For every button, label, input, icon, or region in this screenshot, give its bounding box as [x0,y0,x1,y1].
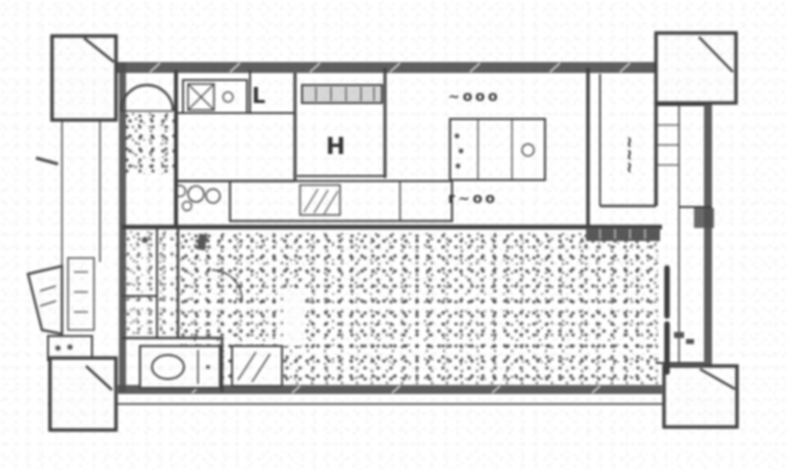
entry-glyph-label: L [252,84,265,108]
closet-shelf [302,85,382,103]
kitchen-label-bottom: r~oo [448,190,498,206]
toilet-fixture [140,346,220,388]
right-room-vertical-label: ~~~ [620,136,638,174]
washer-box [183,80,247,113]
floor-plan-scan: L H ~ooo r~oo ~~~ [0,0,787,470]
pillar-bottom-right [664,366,737,427]
kitchen-island [450,119,545,180]
living-room-fixtures [232,288,303,386]
pillar-bottom-left [50,358,116,430]
pillar-top-right [656,33,736,103]
kitchen-label-top: ~ooo [448,88,501,104]
interior-walls-top [176,68,600,228]
entry-door-arc [121,85,173,111]
pillar-top-left [52,36,116,120]
kitchen-counter [175,181,453,221]
bath-glyph-label: H [326,133,345,159]
floor-plan-linework: L H ~ooo r~oo ~~~ [0,0,787,470]
floor-plan-drawing-area: L H ~ooo r~oo ~~~ [0,0,787,470]
stove-burners [175,186,221,211]
